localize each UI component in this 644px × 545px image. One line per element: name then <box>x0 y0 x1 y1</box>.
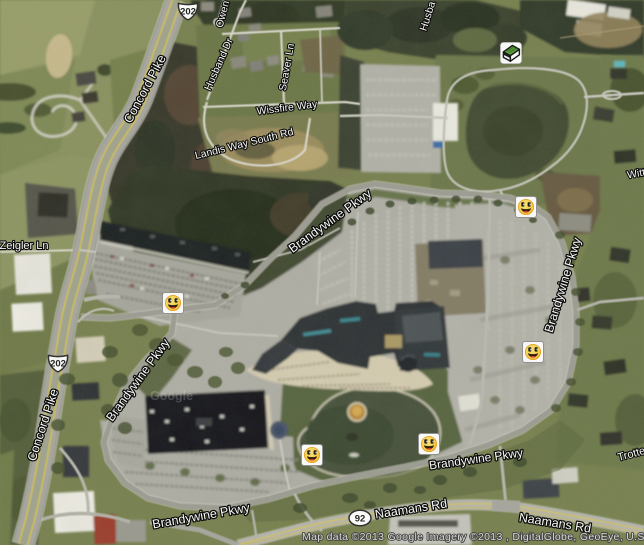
svg-text:202: 202 <box>50 359 66 370</box>
svg-text:202: 202 <box>180 7 196 18</box>
svg-text:Google: Google <box>150 389 193 403</box>
svg-text:Zeigler Ln: Zeigler Ln <box>0 240 48 252</box>
svg-text:92: 92 <box>355 513 366 524</box>
svg-text:Map data ©2013 Google Imagery: Map data ©2013 Google Imagery ©2013 , Di… <box>302 531 644 543</box>
